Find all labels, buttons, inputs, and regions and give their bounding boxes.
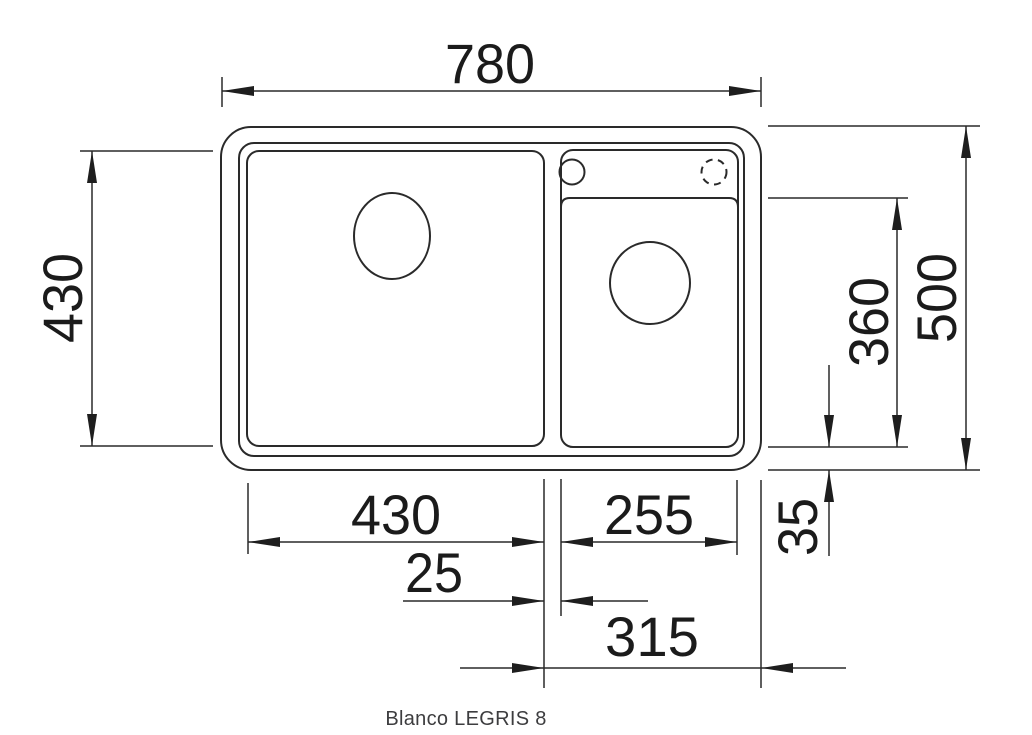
sink-technical-drawing: 780 430 500 360 xyxy=(0,0,1032,735)
arrowhead-down-icon xyxy=(961,438,971,470)
arrowhead-right-icon xyxy=(729,86,761,96)
arrowhead-right-icon xyxy=(512,663,544,673)
right-drain-hole-icon xyxy=(610,242,690,324)
sink-body xyxy=(221,127,761,470)
arrowhead-up-icon xyxy=(892,198,902,230)
left-drain-hole-icon xyxy=(354,193,430,279)
dim-label-rear-edge-offset: 35 xyxy=(766,498,829,556)
arrowhead-up-icon xyxy=(961,126,971,158)
arrowhead-down-icon xyxy=(87,414,97,446)
arrowhead-left-icon xyxy=(561,537,593,547)
dim-overall-width: 780 xyxy=(222,32,761,107)
arrowhead-down-icon xyxy=(824,415,834,447)
dim-rear-edge-offset: 35 xyxy=(766,365,834,556)
right-compartment xyxy=(561,150,738,447)
arrowhead-right-icon xyxy=(512,596,544,606)
dim-right-bowl-width: 255 xyxy=(561,483,737,547)
dim-label-right-bowl-depth: 360 xyxy=(837,277,900,367)
dim-label-right-section-width: 315 xyxy=(605,605,699,668)
dim-label-overall-depth: 500 xyxy=(905,253,968,343)
dim-left-bowl-depth: 430 xyxy=(31,151,213,446)
dim-left-bowl-width: 430 xyxy=(248,483,544,547)
right-bowl-top-edge xyxy=(561,198,738,207)
dim-label-left-bowl-width: 430 xyxy=(351,483,441,546)
optional-tap-hole-icon xyxy=(702,160,727,185)
dim-divider-width: 25 xyxy=(403,541,648,606)
product-caption: Blanco LEGRIS 8 xyxy=(385,708,546,730)
dim-label-left-bowl-depth: 430 xyxy=(31,253,94,343)
dim-label-overall-width: 780 xyxy=(445,32,535,95)
arrowhead-left-icon xyxy=(561,596,593,606)
arrowhead-up-icon xyxy=(87,151,97,183)
arrowhead-down-icon xyxy=(892,415,902,447)
sink-outer-edge xyxy=(221,127,761,470)
dim-right-bowl-depth: 360 xyxy=(768,198,908,447)
technical-drawing-page: 780 430 500 360 xyxy=(0,0,1032,735)
tap-hole-icon xyxy=(560,160,585,185)
arrowhead-right-icon xyxy=(705,537,737,547)
dim-right-section-width: 315 xyxy=(460,605,846,673)
dim-label-divider-width: 25 xyxy=(405,541,463,604)
arrowhead-left-icon xyxy=(248,537,280,547)
dim-label-right-bowl-width: 255 xyxy=(604,483,694,546)
arrowhead-up-icon xyxy=(824,470,834,502)
arrowhead-left-icon xyxy=(761,663,793,673)
arrowhead-right-icon xyxy=(512,537,544,547)
sink-rim xyxy=(239,143,744,456)
left-bowl xyxy=(247,151,544,446)
arrowhead-left-icon xyxy=(222,86,254,96)
